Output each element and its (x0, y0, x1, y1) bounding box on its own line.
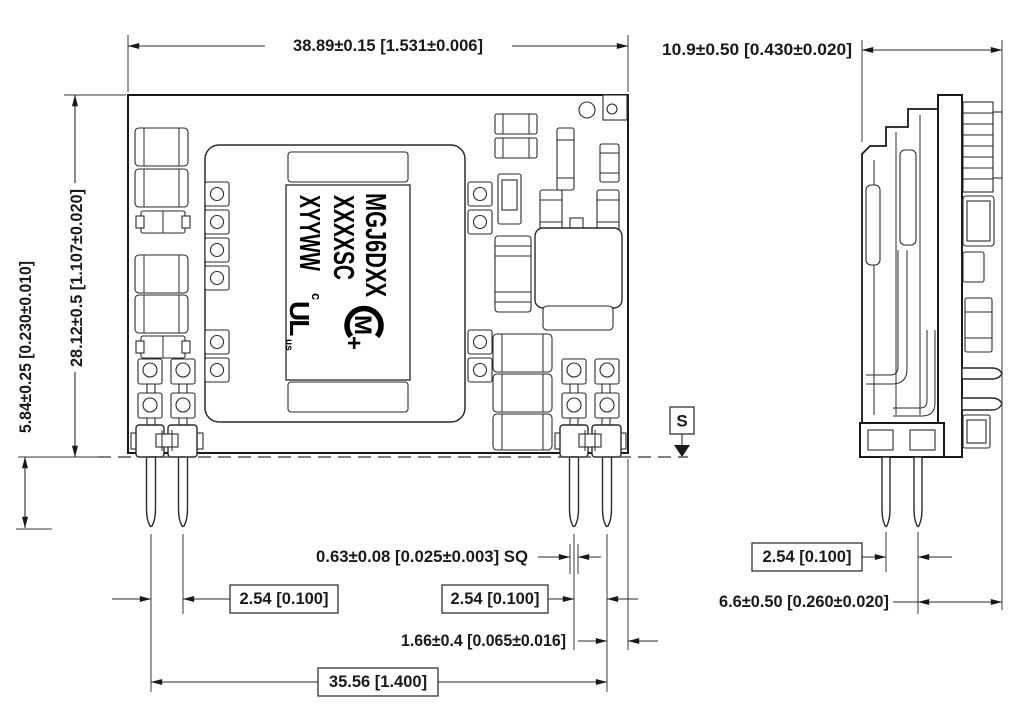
transformer-pads-left (205, 182, 229, 382)
dim-pin-square: 0.63±0.08 [0.025±0.003] SQ (316, 548, 528, 566)
pin-5 (570, 457, 579, 527)
datum-triangle (674, 445, 690, 457)
label-line-2: XXXXSC (327, 195, 359, 280)
side-pin-horizontal-2 (962, 398, 1002, 410)
dim-side-pin-to-edge: 6.6±0.50 [0.260±0.020] (719, 593, 889, 611)
drawing-svg: MGJ6DXX XXXXSC XYYWW M + c UL us (0, 0, 1024, 713)
pin-1 (147, 457, 156, 527)
dim-pin-span: 35.56 [1.400] (329, 673, 427, 691)
dim-pin-to-edge: 1.66±0.4 [0.065±0.016] (401, 632, 566, 650)
datum-label: S (676, 412, 687, 431)
dim-pitch-left: 2.54 [0.100] (240, 590, 329, 608)
pin-2 (179, 457, 188, 527)
power-block (535, 228, 622, 308)
label-line-1: MGJ6DXX (359, 193, 391, 297)
dim-side-width: 10.9±0.50 [0.430±0.020] (662, 41, 852, 59)
murata-logo-letter: M (349, 315, 376, 335)
side-view (860, 95, 1002, 527)
side-pcb (938, 95, 962, 457)
seating-plane (16, 457, 688, 529)
side-pin-1 (882, 457, 890, 527)
smd-components-mid (495, 174, 622, 330)
board-hole-right (579, 102, 595, 118)
ul-mark-us: us (283, 339, 294, 351)
transformer-bottom-flange (288, 382, 408, 412)
side-pin-2 (914, 457, 922, 527)
output-capacitors (493, 334, 552, 450)
notch-hole (607, 104, 617, 114)
dim-pitch-right: 2.54 [0.100] (451, 590, 540, 608)
ul-mark-ul: UL (284, 301, 315, 336)
murata-logo-plus: + (340, 336, 367, 350)
datum-s: S (670, 407, 694, 457)
dim-standoff-height: 5.84±0.25 [0.230±0.010] (17, 261, 35, 433)
front-view: MGJ6DXX XXXXSC XYYWW M + c UL us (128, 95, 628, 527)
transformer (205, 145, 465, 422)
dim-side-pitch: 2.54 [0.100] (763, 548, 852, 566)
dim-body-height: 28.12±0.5 [1.107±0.020] (68, 189, 86, 367)
side-pin-horizontal-1 (962, 368, 1002, 379)
technical-drawing: MGJ6DXX XXXXSC XYYWW M + c UL us (0, 0, 1024, 713)
dim-top-width: 38.89±0.15 [1.531±0.006] (293, 37, 483, 55)
ul-mark-c: c (309, 293, 324, 300)
transformer-top-flange (288, 152, 408, 182)
label-line-3: XYYWW (293, 195, 325, 271)
pin-6 (603, 457, 612, 527)
side-components-right (962, 102, 1002, 448)
